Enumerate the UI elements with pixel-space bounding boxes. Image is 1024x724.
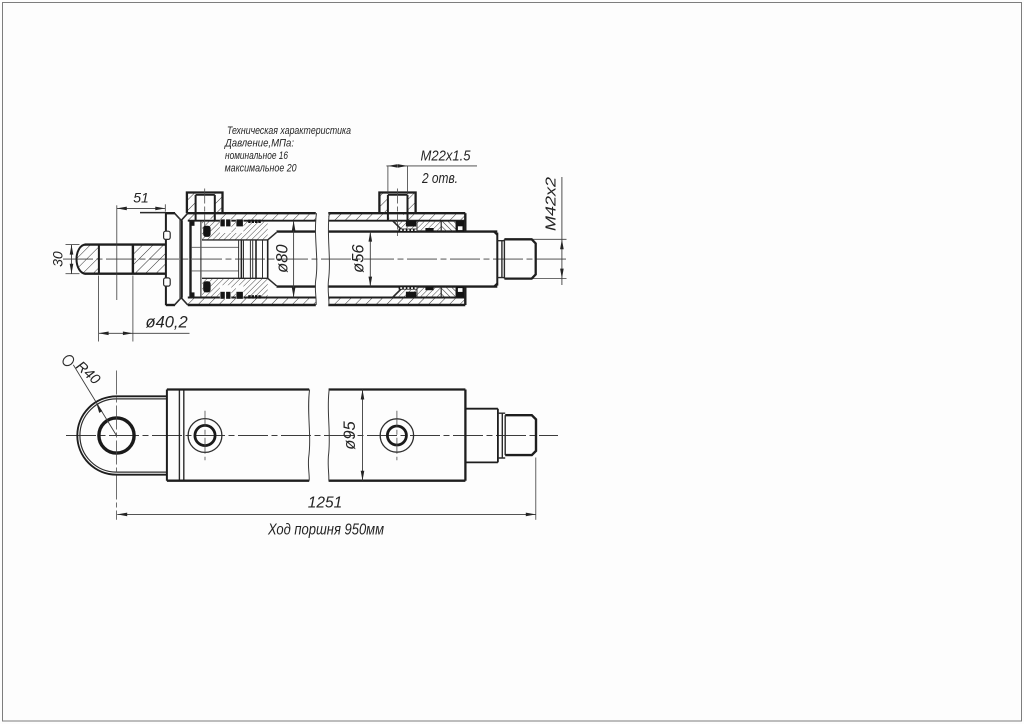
svg-text:ø56: ø56 — [349, 244, 367, 273]
svg-text:максимальное 20: максимальное 20 — [225, 163, 297, 175]
svg-text:Давление,МПа:: Давление,МПа: — [224, 138, 294, 150]
svg-text:Ход поршня 950мм: Ход поршня 950мм — [267, 522, 384, 539]
svg-text:номинальное 16: номинальное 16 — [225, 150, 288, 162]
svg-text:М42х2: М42х2 — [544, 177, 560, 231]
svg-text:ø95: ø95 — [341, 420, 359, 449]
svg-text:51: 51 — [133, 189, 149, 205]
svg-text:ø80: ø80 — [274, 244, 292, 273]
svg-text:М22х1.5: М22х1.5 — [421, 149, 472, 165]
svg-text:1251: 1251 — [308, 495, 342, 512]
svg-text:2 отв.: 2 отв. — [421, 171, 458, 187]
svg-text:30: 30 — [50, 251, 66, 267]
svg-text:Техническая характеристика: Техническая характеристика — [227, 125, 351, 137]
svg-text:ø40,2: ø40,2 — [146, 313, 188, 331]
